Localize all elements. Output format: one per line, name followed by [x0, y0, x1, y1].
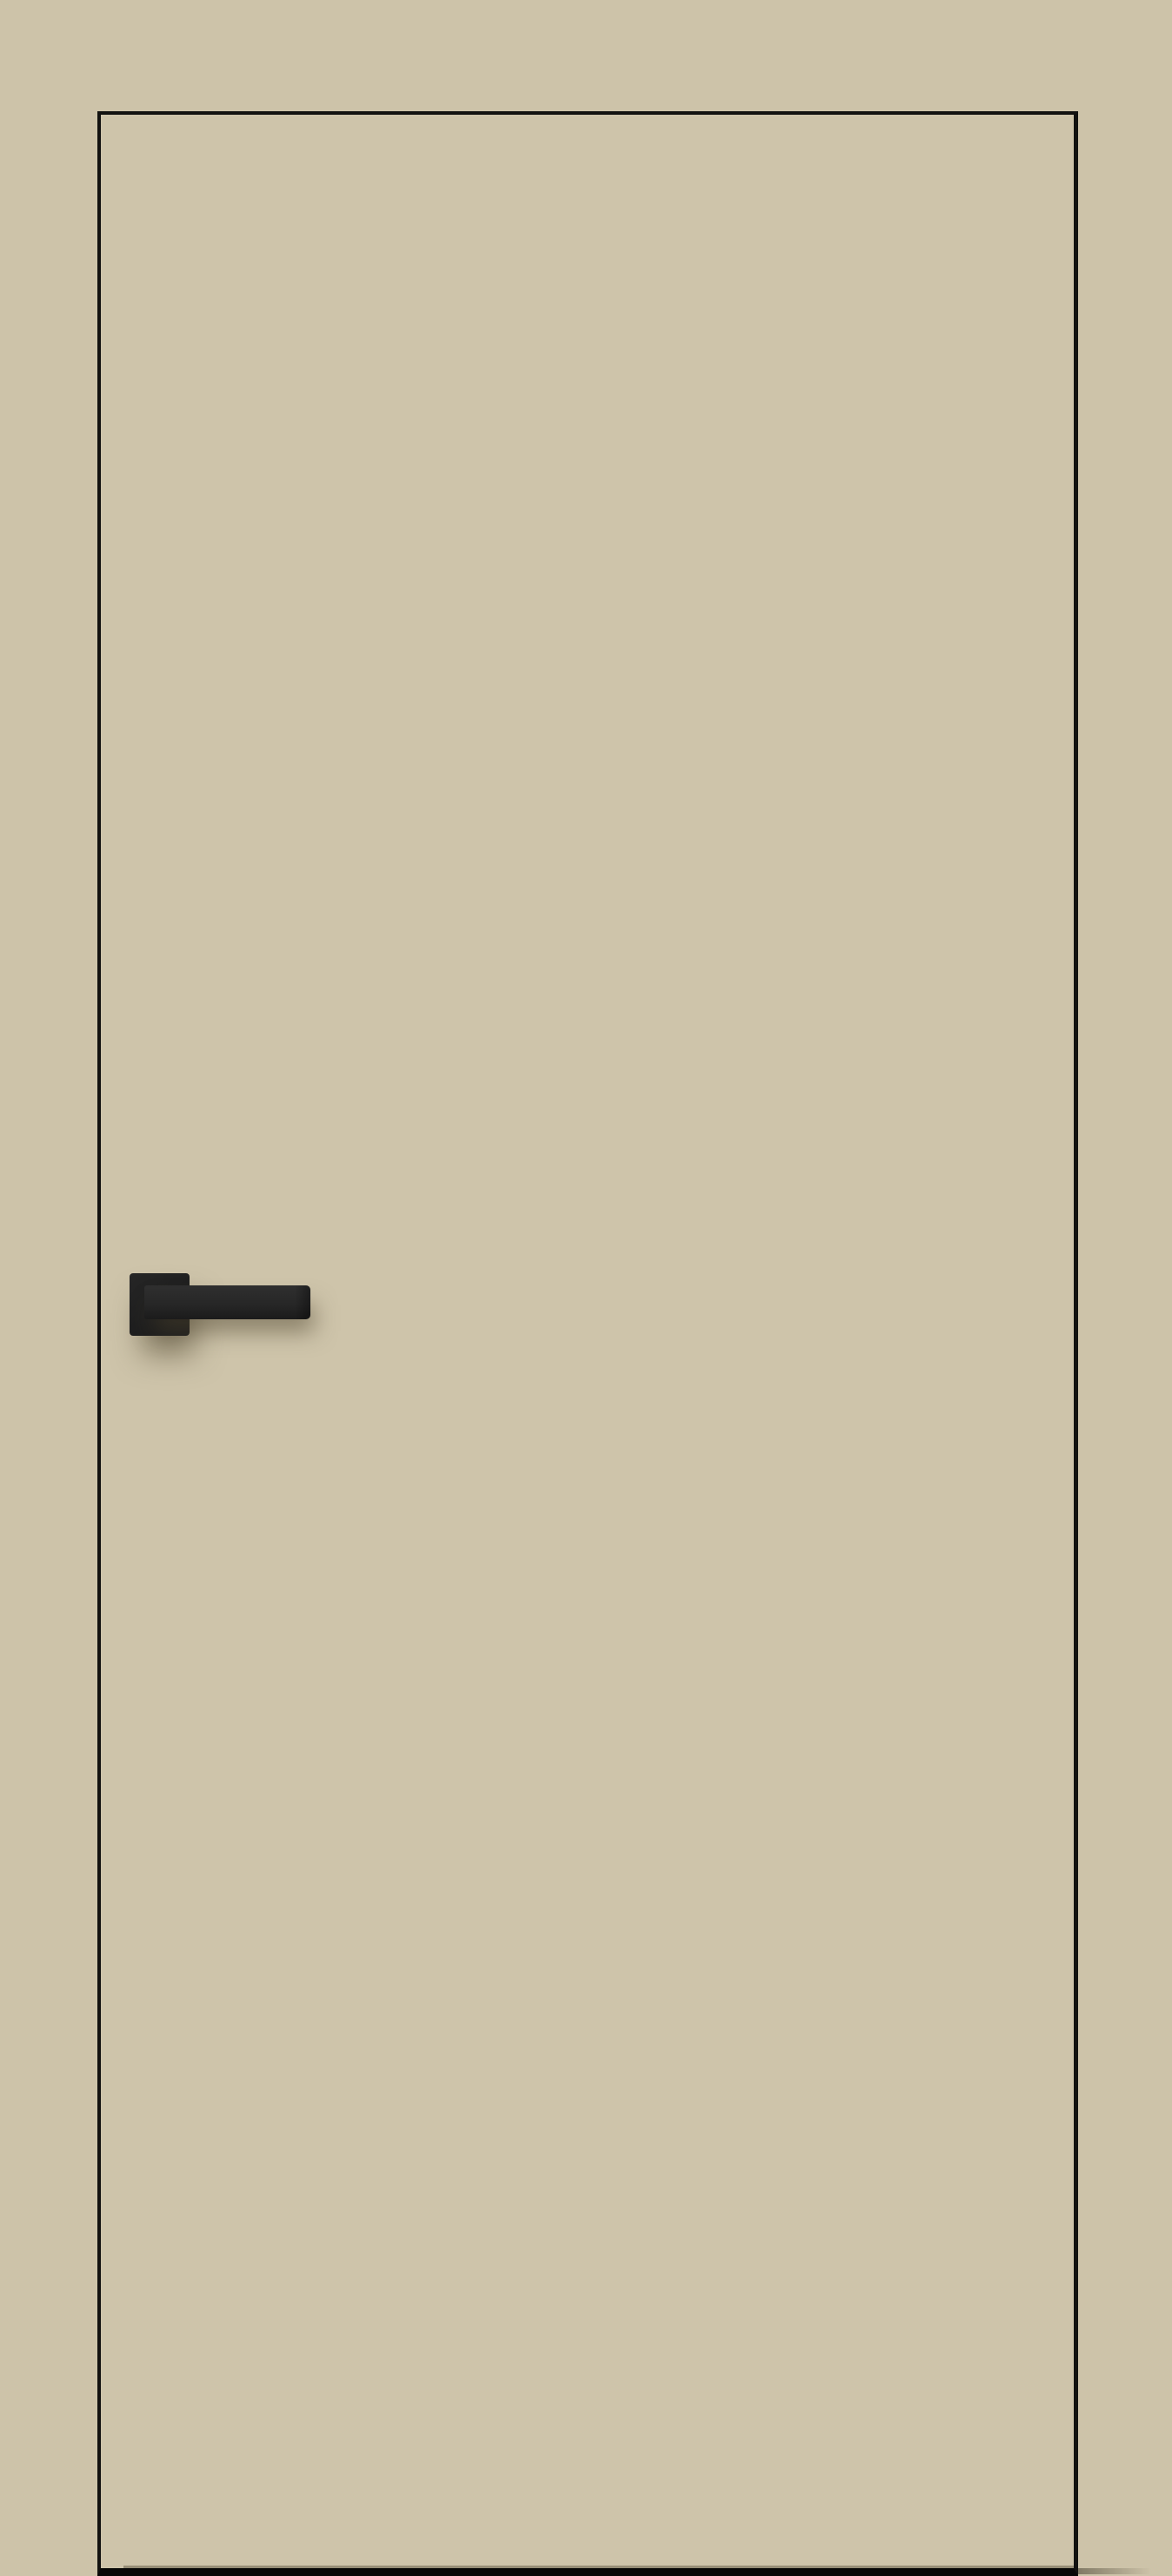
floor-shadow — [1078, 2568, 1151, 2574]
handle-lever — [144, 1285, 310, 1319]
studio-backdrop — [0, 0, 1172, 2576]
door-leaf — [97, 111, 1078, 2576]
